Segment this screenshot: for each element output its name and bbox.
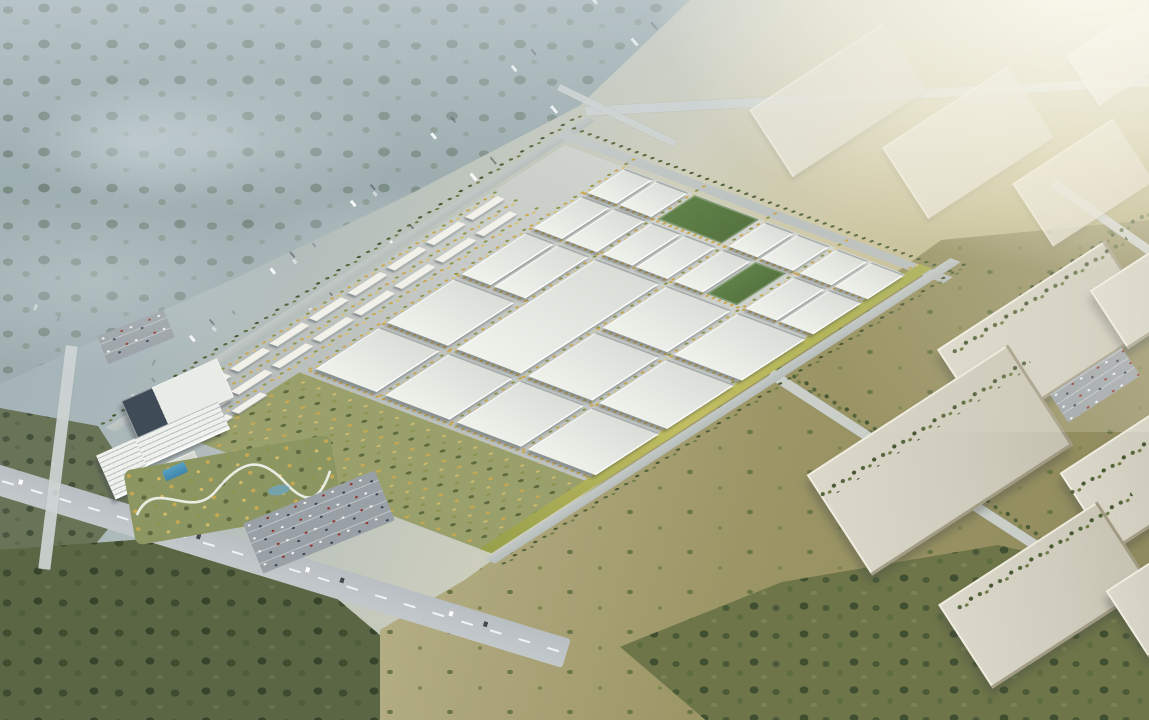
sun-glow: [0, 0, 1149, 720]
stage: [0, 0, 1149, 720]
